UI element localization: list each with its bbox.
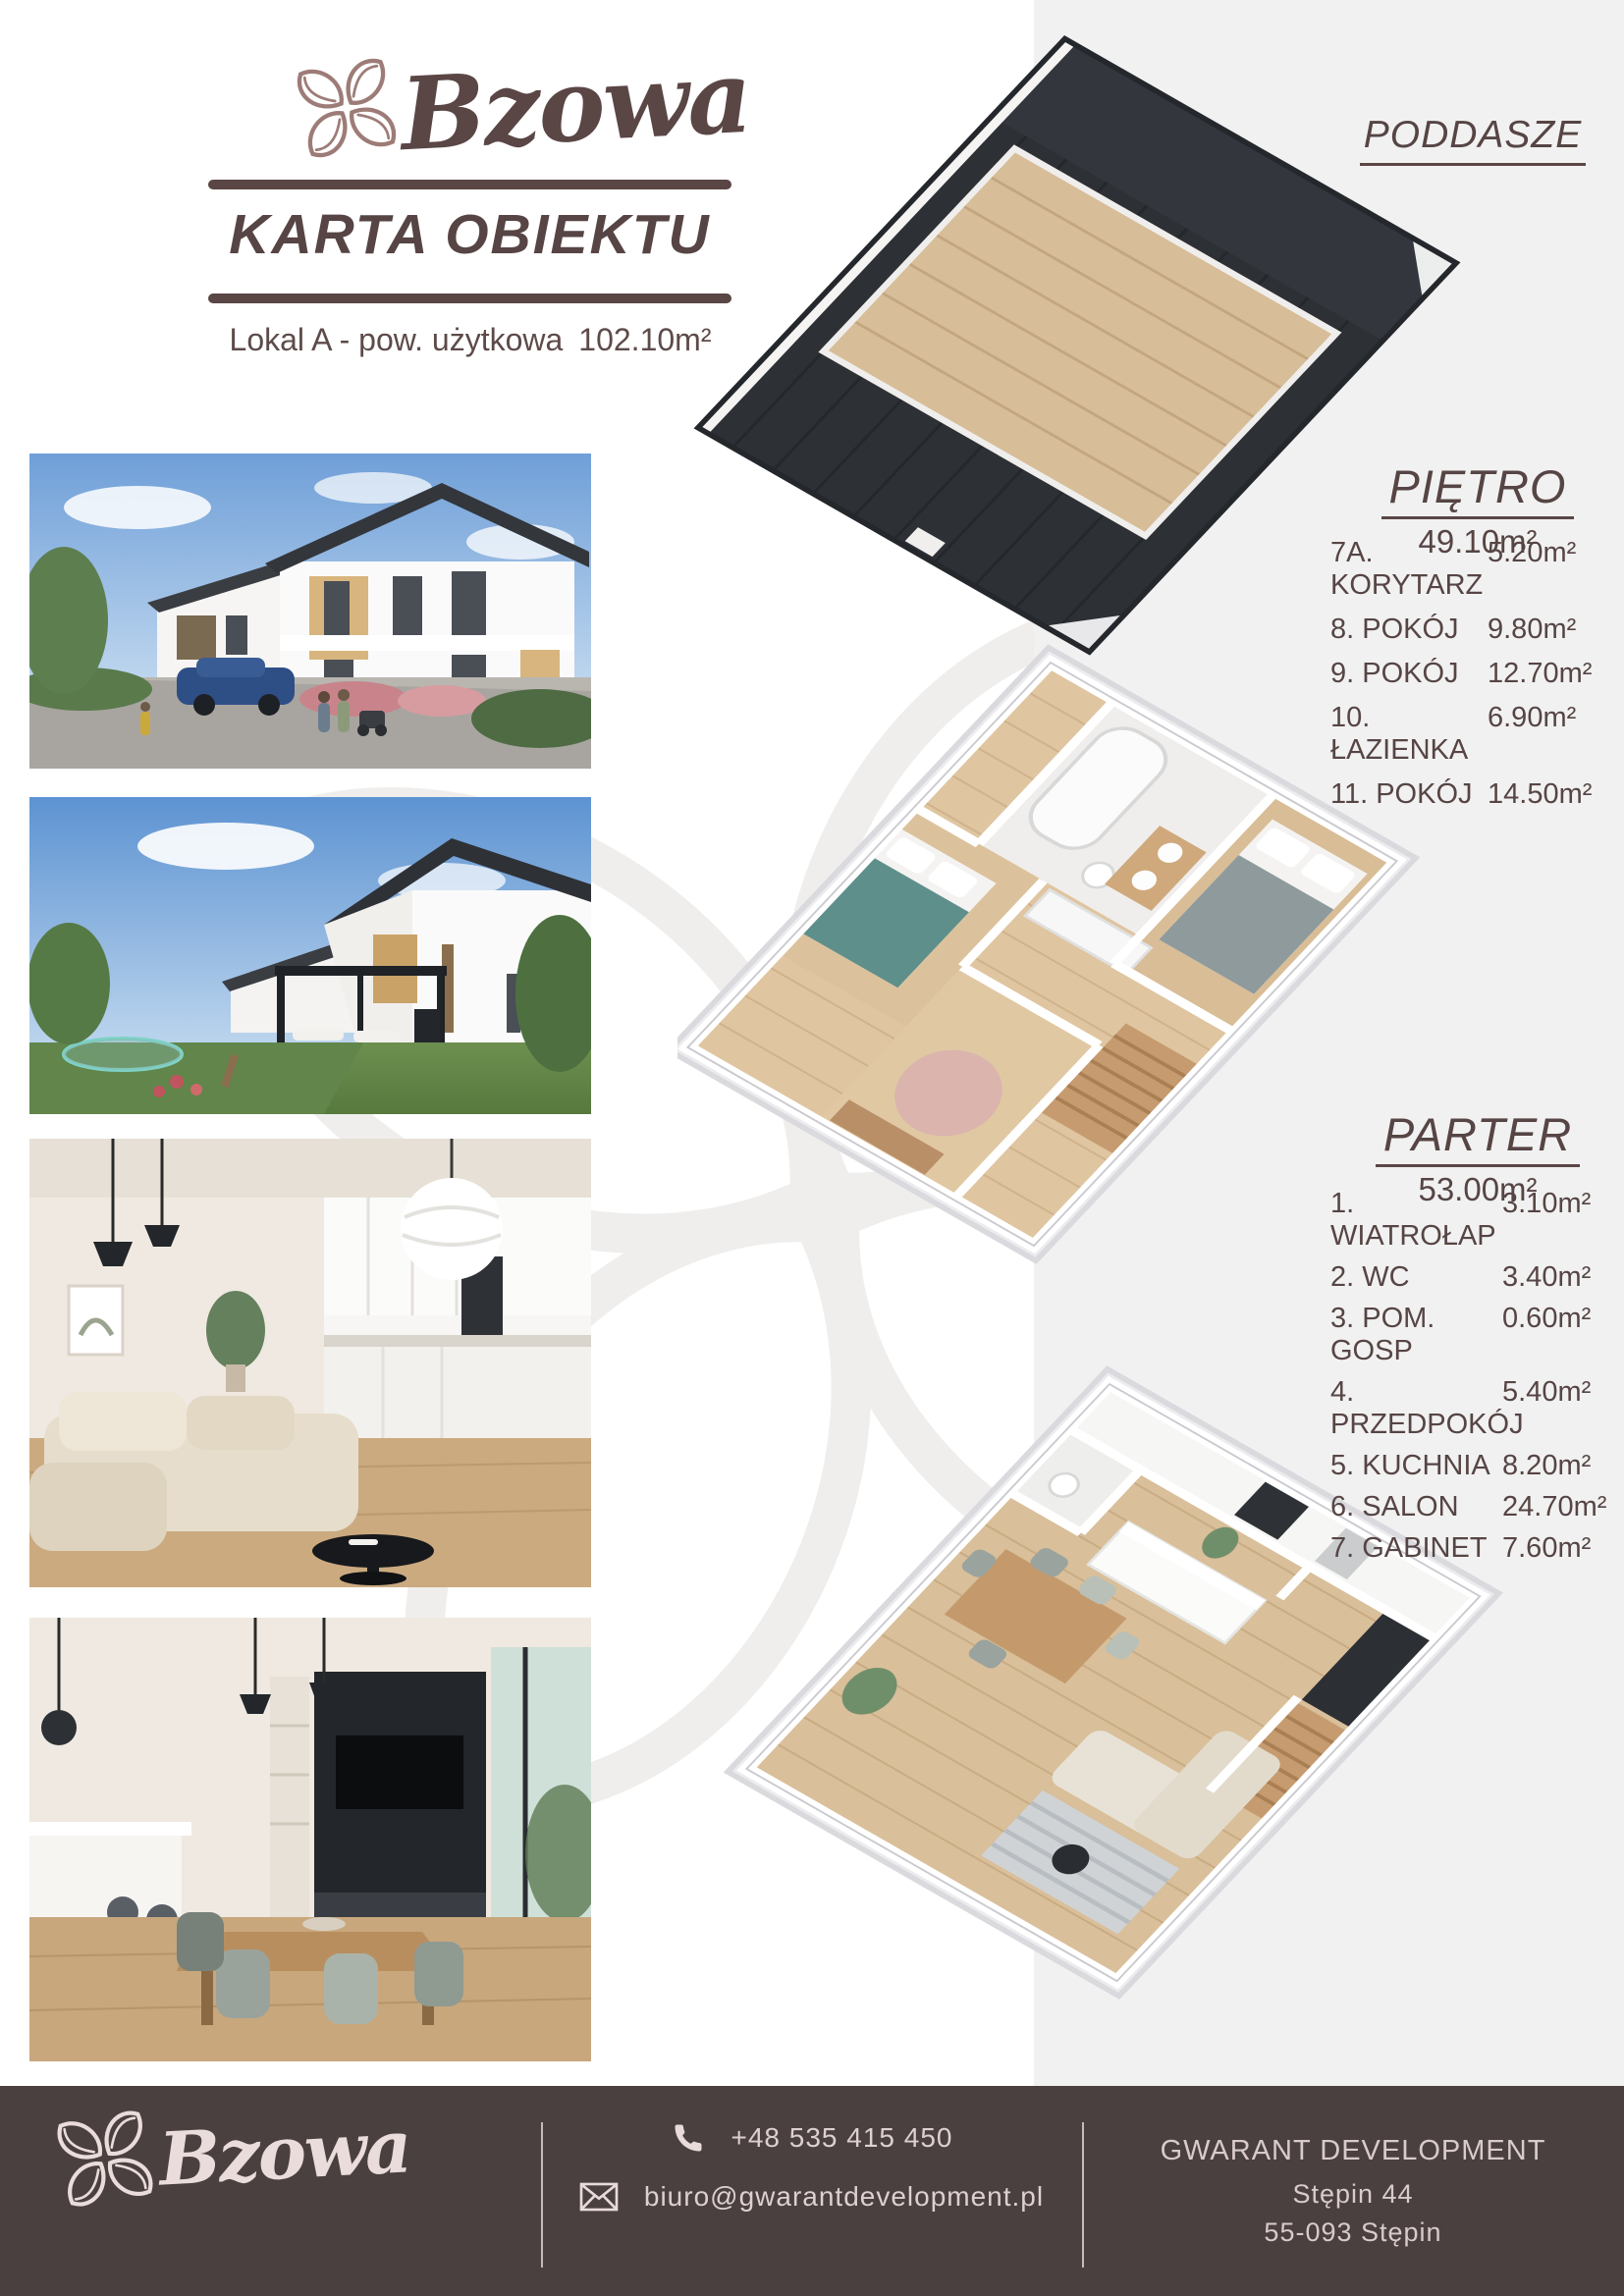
envelope-icon (579, 2182, 619, 2212)
room-label: 1. WIATROŁAP (1330, 1188, 1502, 1253)
room-area: 3.40m² (1502, 1261, 1624, 1294)
footer-flower-logo-icon (47, 2104, 163, 2217)
page-title: KARTA OBIEKTU (208, 202, 731, 267)
room-label: 10. ŁAZIENKA (1330, 702, 1488, 767)
room-row: 6. SALON24.70m² (1330, 1491, 1624, 1523)
room-row: 11. POKÓJ14.50m² (1330, 778, 1624, 811)
unit-label: Lokal A - pow. użytkowa (230, 322, 564, 357)
exterior-front-illustration (29, 454, 591, 769)
room-label: 7A. KORYTARZ (1330, 537, 1488, 602)
room-area: 0.60m² (1502, 1303, 1624, 1335)
room-list-parter: 1. WIATROŁAP3.10m² 2. WC3.40m² 3. POM. G… (1330, 1188, 1624, 1574)
room-list-pietro: 7A. KORYTARZ5.20m² 8. POKÓJ9.80m² 9. POK… (1330, 537, 1624, 823)
header-divider-top (208, 180, 731, 189)
room-row: 2. WC3.40m² (1330, 1261, 1624, 1294)
object-card-page: Bzowa KARTA OBIEKTU Lokal A - pow. użytk… (0, 0, 1624, 2296)
photo-exterior-garden (29, 797, 591, 1114)
floor-title: PIĘTRO (1330, 459, 1624, 519)
footer-phone: +48 535 415 450 (731, 2122, 953, 2154)
unit-subtitle: Lokal A - pow. użytkowa102.10m² (187, 322, 754, 358)
address-line1: Stępin 44 (1082, 2179, 1624, 2210)
room-row: 3. POM. GOSP0.60m² (1330, 1303, 1624, 1367)
room-area: 5.20m² (1488, 537, 1624, 569)
room-area: 8.20m² (1502, 1450, 1624, 1482)
room-area: 5.40m² (1502, 1376, 1624, 1409)
floorplan-pietro (677, 633, 1424, 1418)
room-row: 7. GABINET7.60m² (1330, 1532, 1624, 1565)
footer-contact: +48 535 415 450 biuro@gwarantdevelopment… (541, 2120, 1082, 2213)
room-label: 4. PRZEDPOKÓJ (1330, 1376, 1502, 1441)
room-area: 12.70m² (1488, 658, 1624, 690)
interior-living-illustration (29, 1139, 591, 1587)
pietro-plan-illustration (677, 633, 1424, 1418)
room-label: 9. POKÓJ (1330, 658, 1488, 690)
room-row: 5. KUCHNIA8.20m² (1330, 1450, 1624, 1482)
room-label: 8. POKÓJ (1330, 614, 1488, 646)
phone-row: +48 535 415 450 (671, 2120, 953, 2156)
photo-interior-dining (29, 1618, 591, 2061)
room-label: 2. WC (1330, 1261, 1502, 1294)
room-label: 11. POKÓJ (1330, 778, 1488, 811)
footer-email: biuro@gwarantdevelopment.pl (644, 2181, 1044, 2213)
room-label: 3. POM. GOSP (1330, 1303, 1502, 1367)
room-area: 7.60m² (1502, 1532, 1624, 1565)
footer: Bzowa +48 535 415 450 biuro@gwarantdevel… (0, 2086, 1624, 2296)
footer-brand-text: Bzowa (157, 2105, 412, 2202)
room-area: 24.70m² (1502, 1491, 1624, 1523)
room-row: 7A. KORYTARZ5.20m² (1330, 537, 1624, 602)
room-row: 8. POKÓJ9.80m² (1330, 614, 1624, 646)
email-row: biuro@gwarantdevelopment.pl (579, 2181, 1044, 2213)
room-row: 9. POKÓJ12.70m² (1330, 658, 1624, 690)
room-label: 5. KUCHNIA (1330, 1450, 1502, 1482)
photo-exterior-front (29, 454, 591, 769)
room-row: 1. WIATROŁAP3.10m² (1330, 1188, 1624, 1253)
company-name: GWARANT DEVELOPMENT (1082, 2135, 1624, 2167)
floor-label-poddasze: PODDASZE (1355, 114, 1591, 166)
exterior-garden-illustration (29, 797, 591, 1114)
header-divider-bottom (208, 294, 731, 303)
room-area: 6.90m² (1488, 702, 1624, 734)
room-row: 4. PRZEDPOKÓJ5.40m² (1330, 1376, 1624, 1441)
photo-interior-living (29, 1139, 591, 1587)
phone-handset-icon (671, 2120, 706, 2156)
room-row: 10. ŁAZIENKA6.90m² (1330, 702, 1624, 767)
room-label: 6. SALON (1330, 1491, 1502, 1523)
room-area: 9.80m² (1488, 614, 1624, 646)
flower-logo-icon (287, 51, 406, 169)
address-line2: 55-093 Stępin (1082, 2217, 1624, 2248)
room-area: 3.10m² (1502, 1188, 1624, 1220)
room-area: 14.50m² (1488, 778, 1624, 811)
footer-company-block: GWARANT DEVELOPMENT Stępin 44 55-093 Stę… (1082, 2135, 1624, 2256)
room-label: 7. GABINET (1330, 1532, 1502, 1565)
floor-title: PARTER (1330, 1107, 1624, 1167)
interior-dining-illustration (29, 1618, 591, 2061)
